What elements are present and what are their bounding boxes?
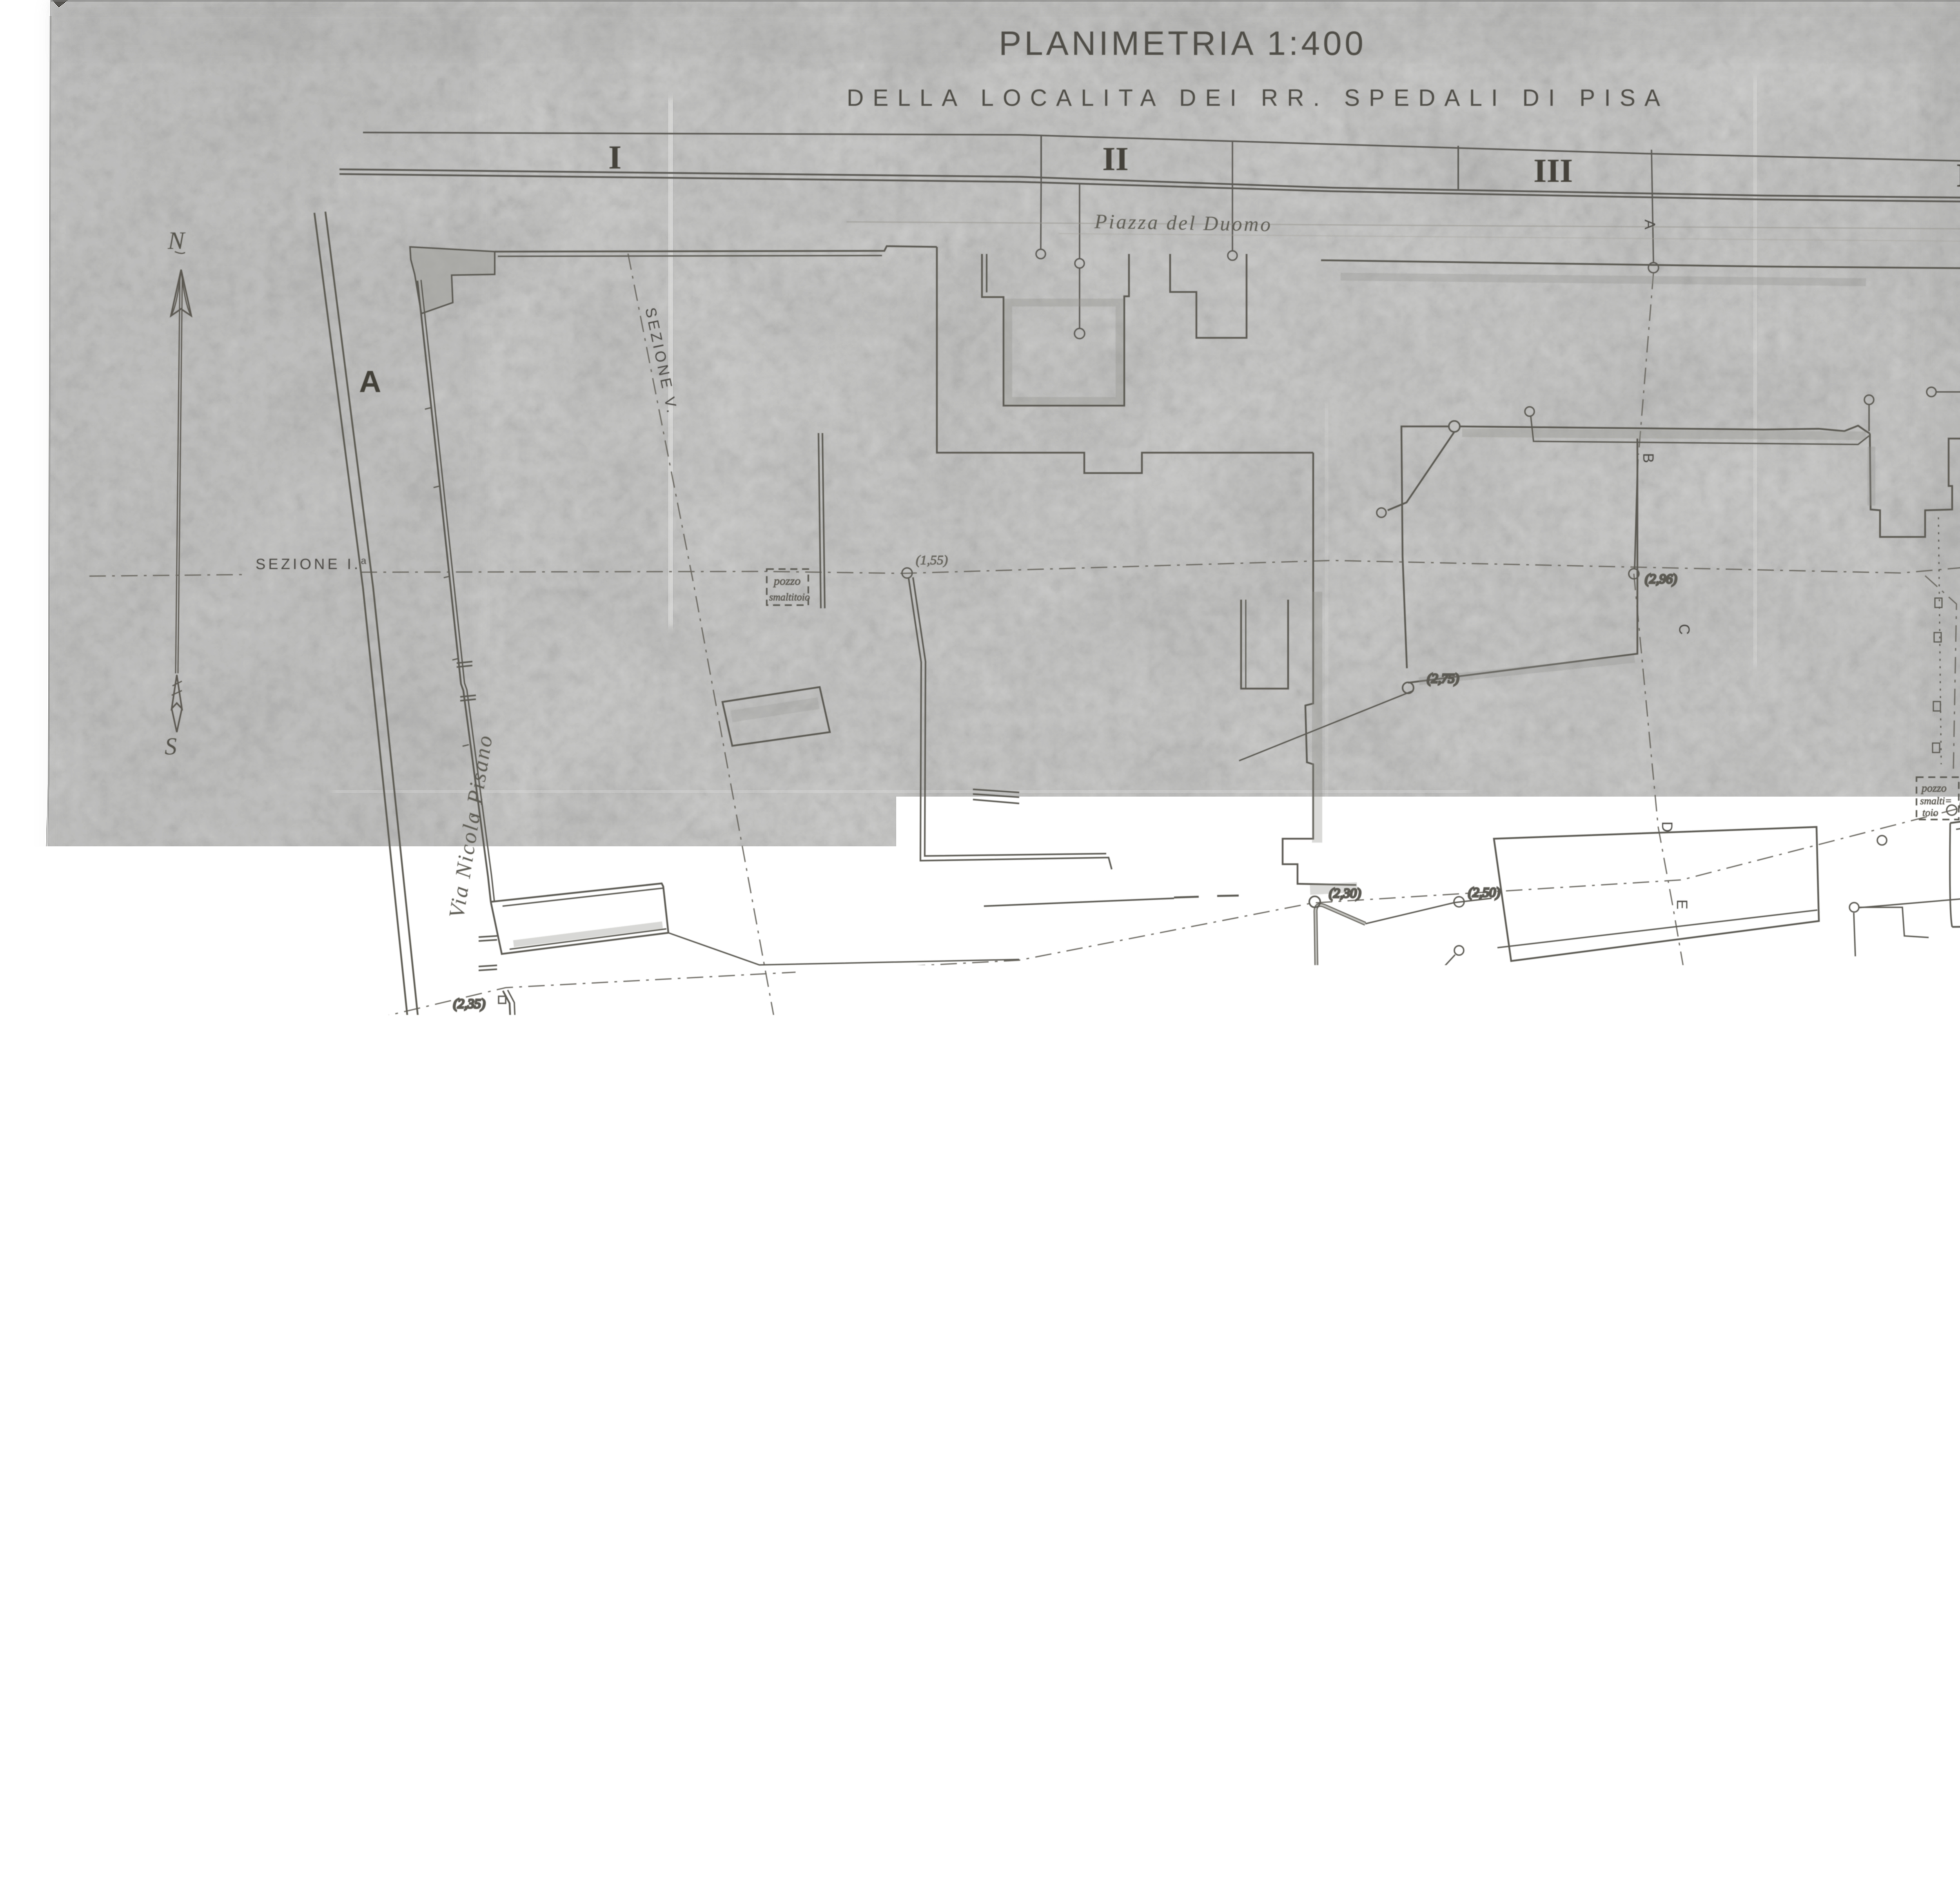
svg-text:(1,60): (1,60): [1198, 1690, 1230, 1704]
svg-text:D: D: [1659, 821, 1675, 835]
svg-text:B: B: [1640, 453, 1656, 466]
svg-text:Fognoli: Fognoli: [14, 1130, 83, 1154]
svg-text:F: F: [1708, 1119, 1724, 1131]
svg-text:(2,75): (2,75): [1427, 671, 1459, 686]
svg-text:Conduttura del gas: Conduttura del gas: [14, 1167, 183, 1191]
svg-text:B: B: [332, 1126, 354, 1160]
svg-text:SEZIONE I.a: SEZIONE I.a: [256, 555, 369, 573]
svg-text:(2,14): (2,14): [816, 1181, 848, 1195]
svg-text:(1,91): (1,91): [1435, 1746, 1463, 1759]
svg-text:G: G: [1744, 1317, 1760, 1331]
svg-text:E: E: [1673, 899, 1690, 912]
svg-text:SEZIONE III.a: SEZIONE III.a: [223, 1452, 350, 1469]
svg-text:(1,55): (1,55): [916, 553, 948, 568]
svg-text:Fogne praticabili: Fogne praticabili: [14, 1093, 169, 1117]
svg-text:(2,30): (2,30): [1329, 886, 1361, 901]
svg-text:pozzo: pozzo: [773, 575, 800, 587]
svg-text:smalti=: smalti=: [1920, 795, 1952, 807]
svg-text:Conduttura dell' acqua potabil: Conduttura dell' acqua potabile: [14, 1238, 347, 1263]
svg-text:II: II: [1102, 140, 1129, 178]
svg-text:acqua pluviali: acqua pluviali: [103, 1133, 206, 1153]
svg-text:S: S: [165, 733, 177, 760]
svg-text:IV: IV: [1956, 156, 1960, 194]
svg-text:C: C: [310, 1678, 331, 1710]
svg-text:(2,35): (2,35): [453, 997, 485, 1011]
svg-text:PLANIMETRIA 1:400: PLANIMETRIA 1:400: [999, 25, 1371, 62]
svg-text:(2,52): (2,52): [1562, 1164, 1592, 1179]
svg-text:I: I: [608, 138, 621, 176]
svg-text:1: 1: [1885, 1150, 1895, 1166]
svg-text:SEZIONE IV.: SEZIONE IV.: [212, 1820, 329, 1837]
svg-text:Piazza del Duomo: Piazza del Duomo: [1094, 210, 1273, 236]
svg-text:(1,73): (1,73): [482, 1357, 514, 1372]
svg-text:I numeri bleu indicano le quot: I numeri bleu indicano le quote: [11, 1309, 349, 1333]
svg-text:(2,50): (2,50): [1468, 885, 1500, 900]
svg-text:(2,075): (2,075): [554, 1222, 593, 1236]
svg-text:Cannelle d'attingimento: Cannelle d'attingimento: [16, 1273, 227, 1298]
svg-text:III: III: [1534, 152, 1573, 189]
svg-text:toio: toio: [1922, 807, 1938, 818]
svg-text:smaltitoio: smaltitoio: [769, 591, 810, 603]
svg-text:Regolatori: Regolatori: [18, 1202, 112, 1226]
svg-text:A: A: [1641, 219, 1658, 232]
svg-text:pozzo: pozzo: [1921, 782, 1947, 794]
svg-text:A: A: [359, 364, 381, 399]
svg-text:(2,35): (2,35): [1333, 1017, 1365, 1032]
svg-text:N: N: [167, 227, 186, 254]
svg-text:C: C: [1676, 624, 1692, 637]
svg-text:del fondo fogne riferite al ba: del fondo fogne riferite al basso mare: [4, 1342, 374, 1366]
svg-text:SEZIONE II.a: SEZIONE II.a: [229, 1014, 349, 1031]
svg-text:H: H: [1746, 1443, 1762, 1456]
svg-text:Annotazioni: Annotazioni: [56, 1041, 264, 1086]
svg-text:DELLA LOCALITA DEI RR. SPE: DELLA LOCALITA DEI RR. SPEDALI DI PISA: [847, 85, 1668, 111]
svg-text:(2,96): (2,96): [1645, 572, 1677, 586]
svg-text:(1,70): (1,70): [1919, 1694, 1951, 1709]
